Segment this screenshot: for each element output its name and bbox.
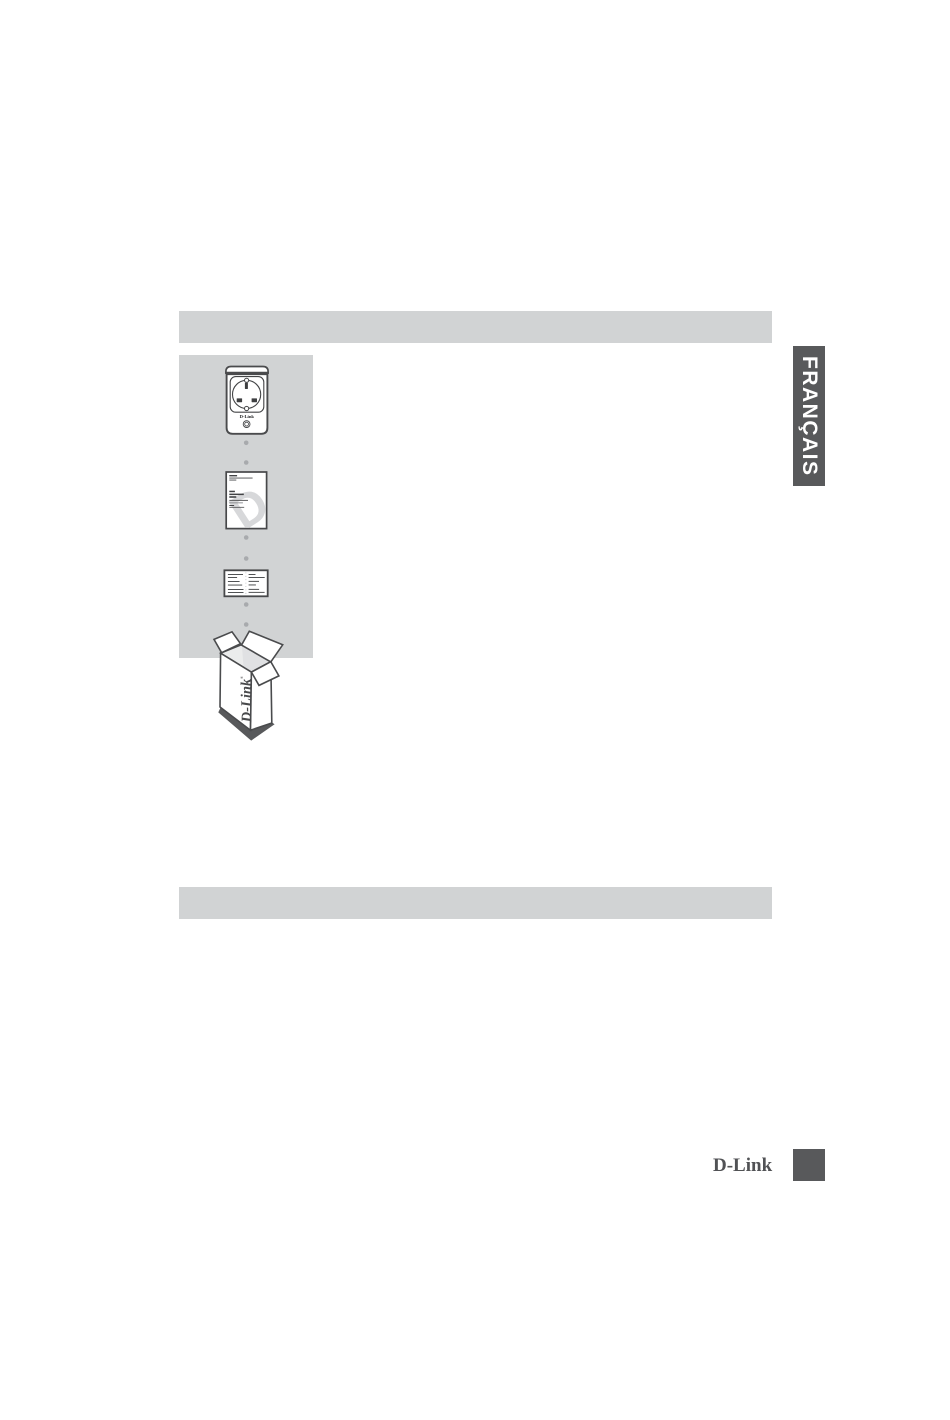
svg-text:D-Link: D-Link	[238, 678, 255, 724]
svg-text:D-Link: D-Link	[240, 414, 255, 419]
